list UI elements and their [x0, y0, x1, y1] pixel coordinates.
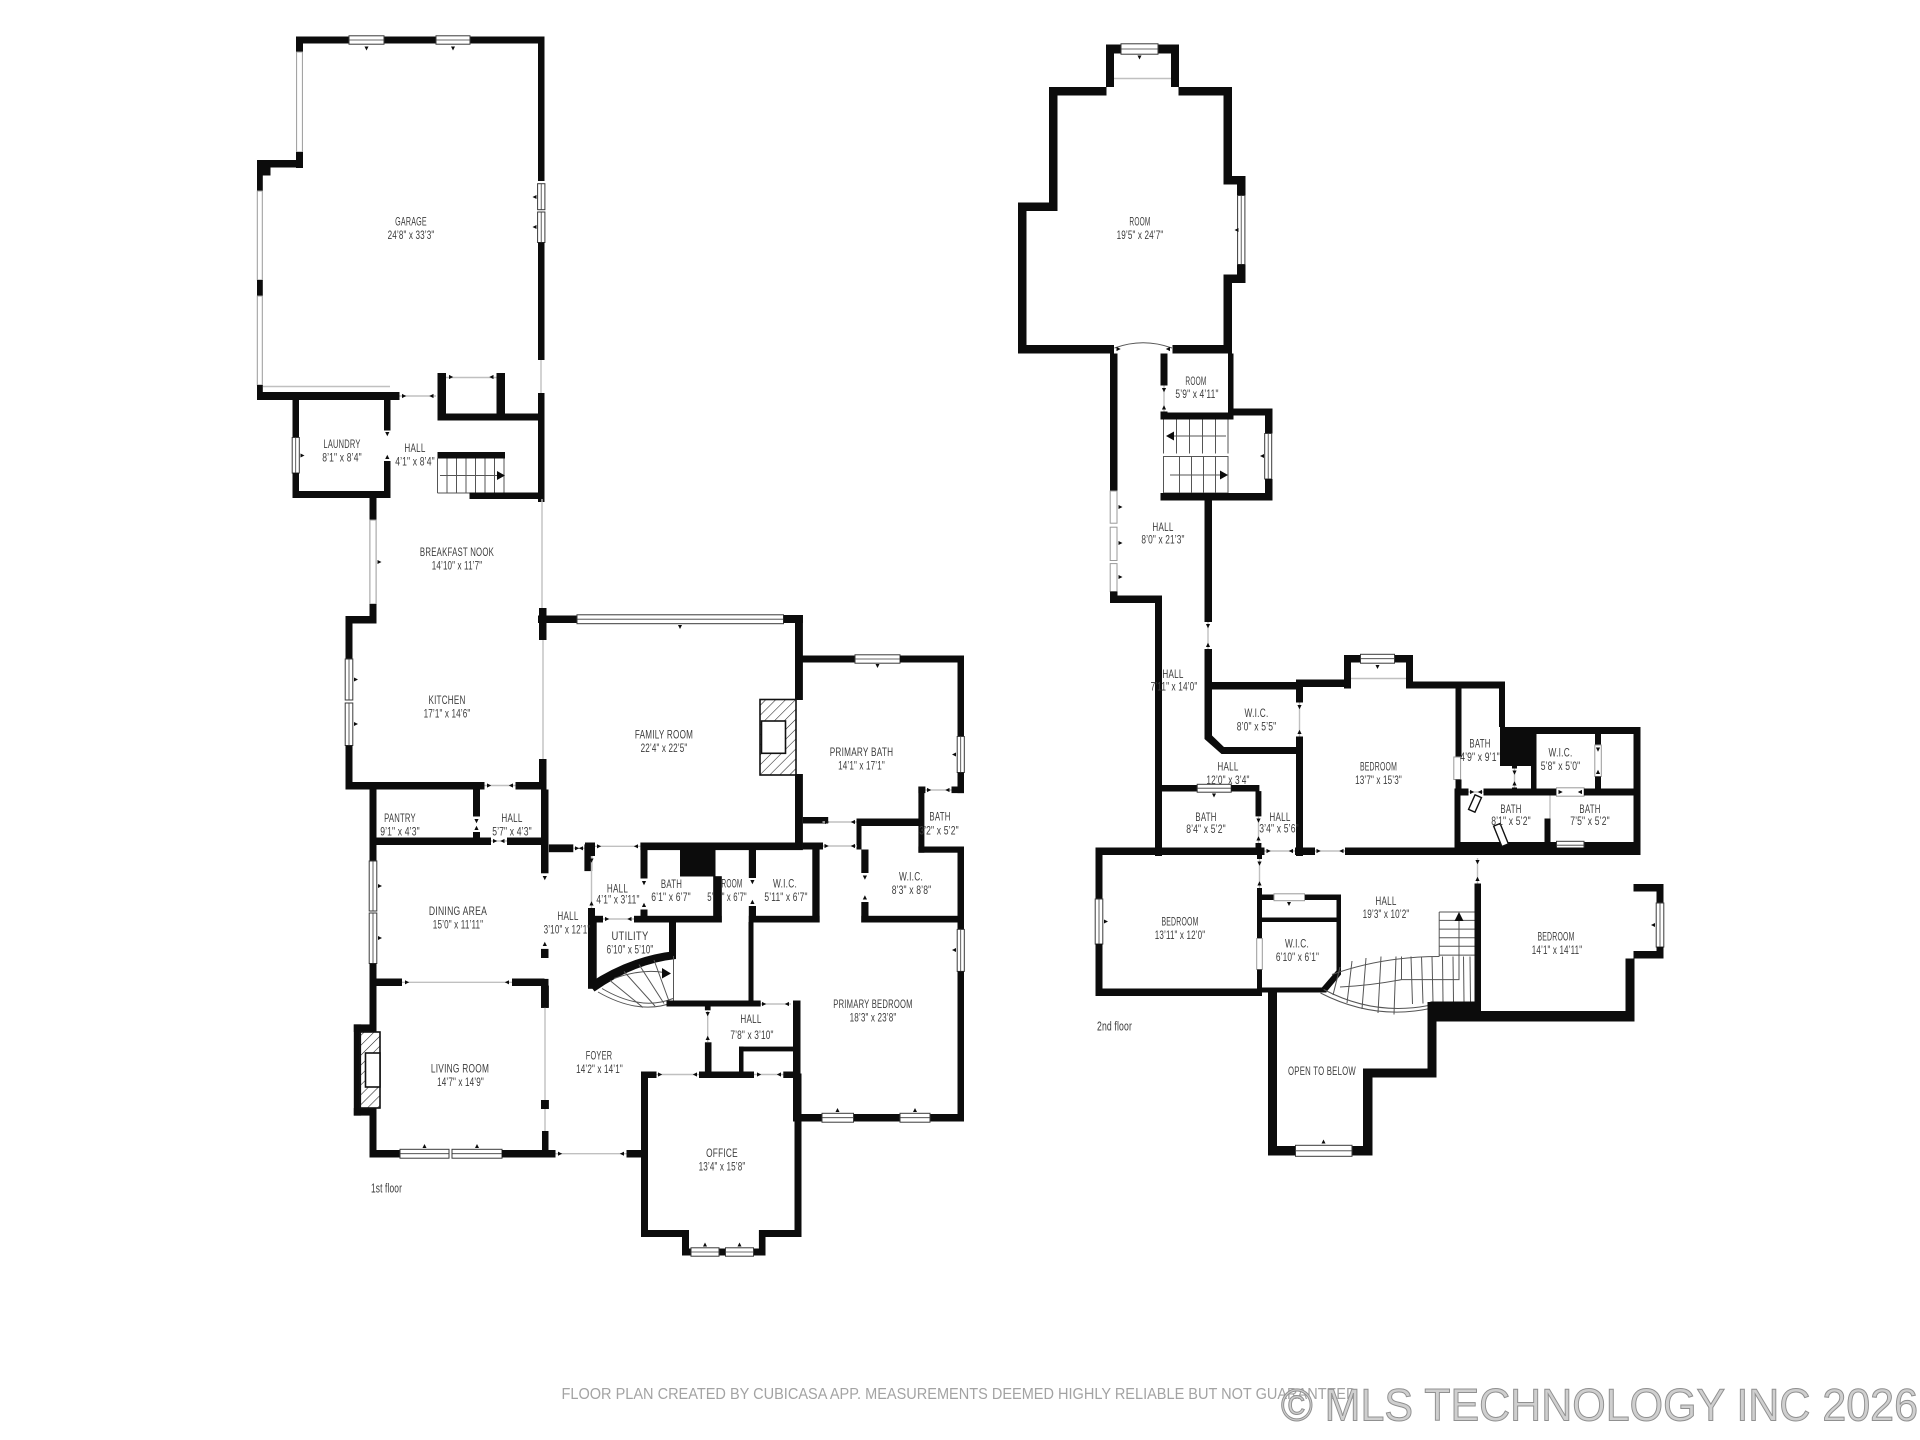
svg-text:BATH: BATH [661, 877, 682, 891]
svg-text:HALL: HALL [740, 1012, 761, 1026]
svg-text:BEDROOM: BEDROOM [1537, 930, 1574, 944]
svg-text:8’0" x 21’3": 8’0" x 21’3" [1141, 533, 1184, 547]
svg-text:5’9" x 4’11": 5’9" x 4’11" [1175, 387, 1218, 401]
svg-text:BEDROOM: BEDROOM [1161, 915, 1198, 929]
svg-text:BATH: BATH [1469, 737, 1490, 751]
svg-text:KITCHEN: KITCHEN [428, 693, 465, 707]
svg-text:ROOM: ROOM [721, 877, 742, 891]
svg-text:4’1" x 8’4": 4’1" x 8’4" [395, 455, 435, 469]
svg-text:14’10" x 11’7": 14’10" x 11’7" [432, 559, 482, 573]
svg-text:LIVING ROOM: LIVING ROOM [431, 1062, 489, 1076]
svg-text:FAMILY ROOM: FAMILY ROOM [635, 728, 693, 742]
svg-text:ROOM: ROOM [1129, 215, 1150, 229]
svg-text:14’7" x 14’9": 14’7" x 14’9" [437, 1075, 484, 1089]
svg-text:OFFICE: OFFICE [706, 1146, 738, 1160]
svg-text:ROOM: ROOM [1185, 374, 1206, 388]
svg-text:13’11" x 12’0": 13’11" x 12’0" [1155, 928, 1205, 942]
svg-text:FOYER: FOYER [586, 1049, 613, 1063]
svg-text:24’8" x 33’3": 24’8" x 33’3" [388, 228, 435, 242]
svg-text:8’0" x 5’5": 8’0" x 5’5" [1237, 720, 1277, 734]
svg-text:BEDROOM: BEDROOM [1360, 760, 1397, 774]
svg-text:18’3" x 23’8": 18’3" x 23’8" [850, 1011, 897, 1025]
svg-text:3’2" x 5’2": 3’2" x 5’2" [919, 824, 959, 838]
svg-text:13’7" x 15’3": 13’7" x 15’3" [1355, 773, 1402, 787]
svg-text:OPEN TO BELOW: OPEN TO BELOW [1288, 1064, 1356, 1078]
svg-text:PRIMARY BEDROOM: PRIMARY BEDROOM [833, 997, 913, 1011]
svg-text:FLOOR PLAN CREATED BY CUBICASA: FLOOR PLAN CREATED BY CUBICASA APP. MEAS… [562, 1386, 1357, 1403]
svg-text:W.I.C.: W.I.C. [1285, 937, 1309, 951]
svg-text:17’1" x 14’6": 17’1" x 14’6" [424, 707, 471, 721]
svg-text:19’5" x 24’7": 19’5" x 24’7" [1117, 228, 1164, 242]
svg-text:GARAGE: GARAGE [395, 215, 427, 229]
svg-text:4’1" x 3’11": 4’1" x 3’11" [596, 893, 639, 907]
svg-text:12’0" x 3’4": 12’0" x 3’4" [1206, 773, 1249, 787]
svg-text:HALL: HALL [557, 909, 578, 923]
svg-text:2nd floor: 2nd floor [1097, 1020, 1132, 1034]
svg-text:HALL: HALL [1375, 894, 1396, 908]
svg-text:5’11" x 6’7": 5’11" x 6’7" [764, 890, 807, 904]
svg-text:HALL: HALL [501, 811, 522, 825]
svg-text:13’4" x 15’8": 13’4" x 15’8" [699, 1160, 746, 1174]
svg-text:8’1" x 5’2": 8’1" x 5’2" [1491, 814, 1531, 828]
svg-text:W.I.C.: W.I.C. [899, 870, 923, 884]
svg-text:LAUNDRY: LAUNDRY [323, 437, 360, 451]
svg-text:14’2" x 14’1": 14’2" x 14’1" [576, 1062, 623, 1076]
svg-text:4’9" x 9’1": 4’9" x 9’1" [1460, 750, 1500, 764]
svg-text:BATH: BATH [929, 810, 950, 824]
svg-text:HALL: HALL [1217, 760, 1238, 774]
svg-text:5’11" x 6’7": 5’11" x 6’7" [707, 890, 747, 904]
svg-text:W.I.C.: W.I.C. [773, 877, 797, 891]
svg-text:7’8" x 3’10": 7’8" x 3’10" [730, 1028, 773, 1042]
svg-text:3’4" x 5’6": 3’4" x 5’6" [1259, 821, 1299, 835]
svg-text:W.I.C.: W.I.C. [1549, 746, 1573, 760]
svg-text:PANTRY: PANTRY [384, 811, 416, 825]
svg-text:8’1" x 8’4": 8’1" x 8’4" [322, 451, 362, 465]
svg-text:7’11" x 14’0": 7’11" x 14’0" [1151, 680, 1198, 694]
svg-text:9’1" x 4’3": 9’1" x 4’3" [380, 825, 420, 839]
svg-text:8’4" x 5’2": 8’4" x 5’2" [1186, 822, 1226, 836]
svg-text:7’5" x 5’2": 7’5" x 5’2" [1570, 814, 1610, 828]
svg-text:3’10" x 12’1": 3’10" x 12’1" [544, 923, 591, 937]
svg-text:14’1" x 14’11": 14’1" x 14’11" [1532, 943, 1582, 957]
svg-text:PRIMARY BATH: PRIMARY BATH [830, 745, 894, 759]
svg-text:1st floor: 1st floor [371, 1182, 402, 1196]
svg-text:6’10" x 5’10": 6’10" x 5’10" [607, 943, 654, 957]
svg-text:8’3" x 8’8": 8’3" x 8’8" [892, 883, 932, 897]
svg-text:BREAKFAST NOOK: BREAKFAST NOOK [420, 545, 494, 559]
svg-text:UTILITY: UTILITY [611, 929, 648, 943]
svg-text:HALL: HALL [404, 441, 425, 455]
svg-text:W.I.C.: W.I.C. [1245, 706, 1269, 720]
svg-text:14’1" x 17’1": 14’1" x 17’1" [838, 759, 885, 773]
svg-text:6’1" x 6’7": 6’1" x 6’7" [651, 890, 691, 904]
svg-text:© MLS TECHNOLOGY INC 2026: © MLS TECHNOLOGY INC 2026 [1281, 1380, 1918, 1431]
svg-text:5’7" x 4’3": 5’7" x 4’3" [492, 825, 532, 839]
svg-text:19’3" x 10’2": 19’3" x 10’2" [1363, 907, 1410, 921]
svg-text:22’4" x 22’5": 22’4" x 22’5" [641, 741, 688, 755]
svg-text:6’10" x 6’1": 6’10" x 6’1" [1276, 950, 1319, 964]
svg-text:15’0" x 11’11": 15’0" x 11’11" [433, 918, 483, 932]
svg-text:DINING AREA: DINING AREA [429, 904, 487, 918]
svg-text:5’8" x 5’0": 5’8" x 5’0" [1541, 759, 1581, 773]
